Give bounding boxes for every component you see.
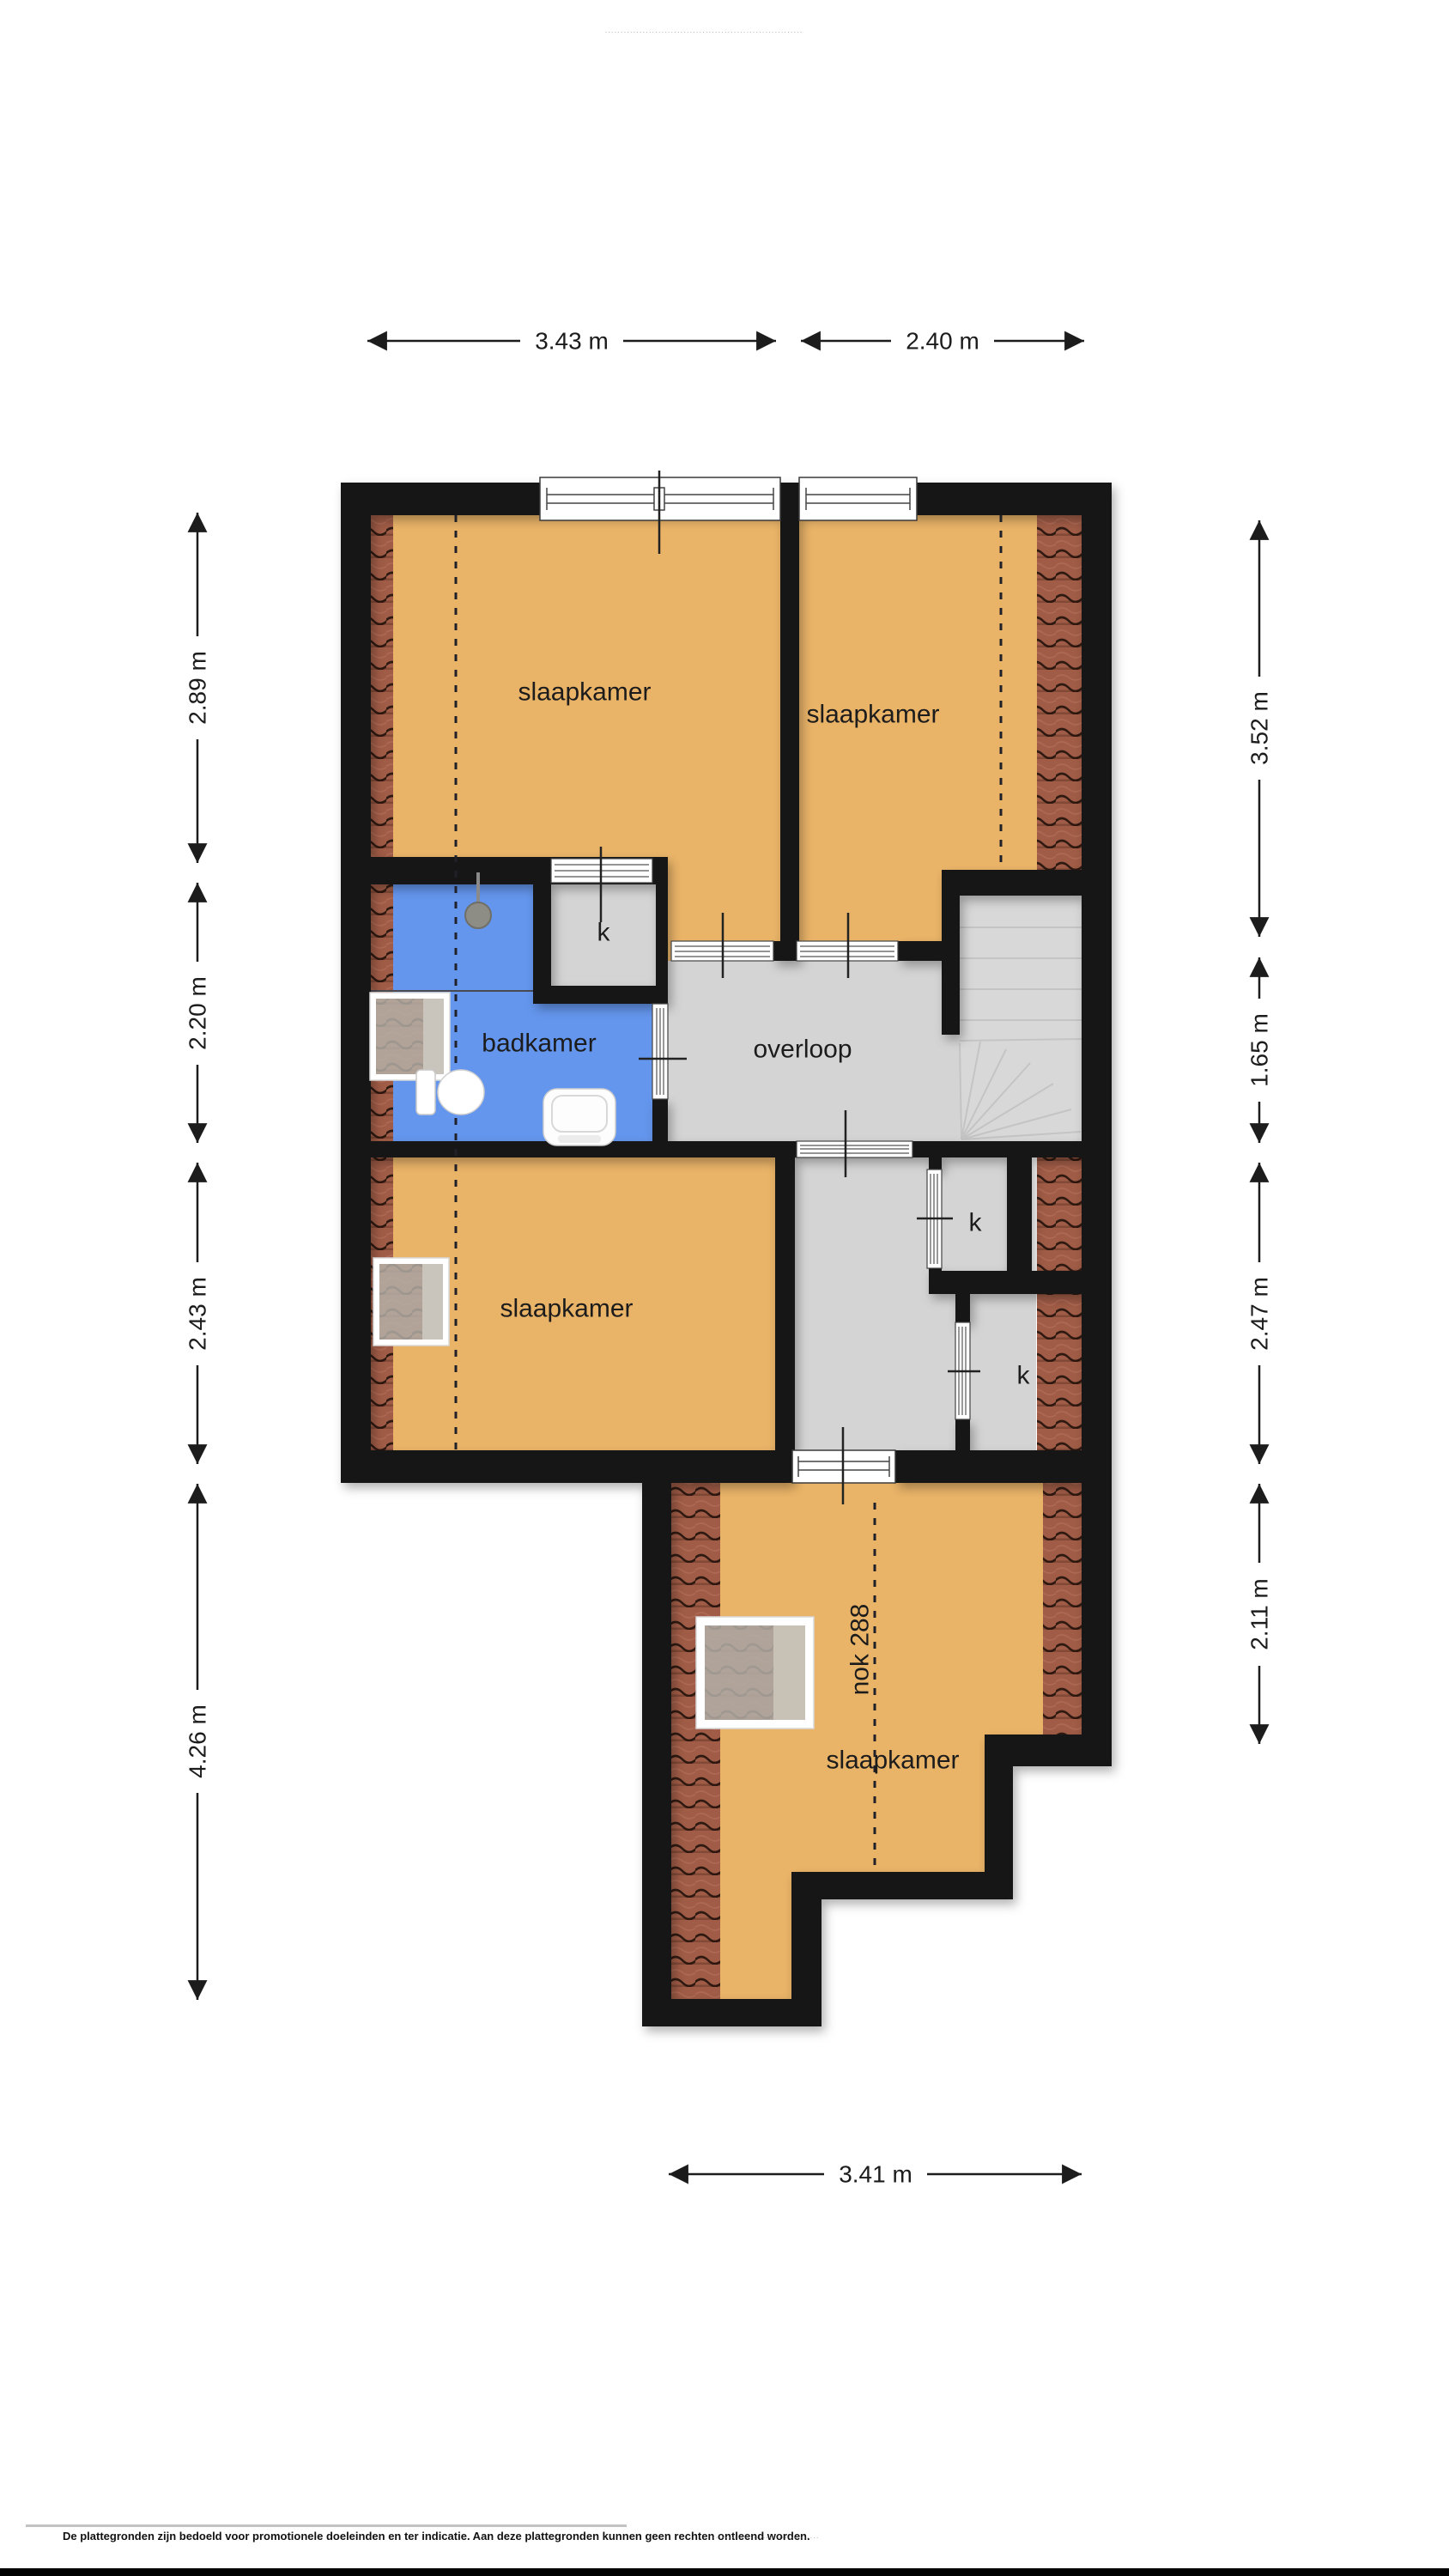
label-closet-bottom: k: [1017, 1362, 1031, 1390]
top-watermark: ········································…: [605, 28, 803, 36]
footer-streak: [26, 2524, 627, 2527]
label-bedroom-top-right: slaapkamer: [806, 701, 939, 729]
roof-tiles-bottom-left: [671, 1483, 720, 1999]
window-top-right: [799, 477, 917, 520]
label-bedroom-bottom: slaapkamer: [826, 1747, 959, 1775]
footer-bar: [0, 2568, 1449, 2576]
footer-disclaimer: De plattegronden zijn bedoeld voor promo…: [63, 2530, 810, 2543]
footer-watermark: ··································: [712, 2534, 820, 2542]
svg-text:3.52 m: 3.52 m: [1246, 691, 1273, 765]
svg-text:2.89 m: 2.89 m: [185, 651, 211, 725]
svg-text:2.40 m: 2.40 m: [906, 328, 979, 355]
opening-landing-south: [797, 1141, 912, 1157]
label-ridge-height: nok 288: [846, 1604, 875, 1696]
skylight-bathroom: [370, 993, 450, 1080]
svg-text:3.43 m: 3.43 m: [535, 328, 609, 355]
sink-icon: [543, 1089, 615, 1145]
stairs: [960, 896, 1082, 1141]
svg-text:1.65 m: 1.65 m: [1246, 1013, 1273, 1087]
label-bedroom-top-left: slaapkamer: [518, 678, 651, 707]
svg-text:4.26 m: 4.26 m: [185, 1704, 211, 1778]
skylight-bedroom-mid: [373, 1258, 449, 1346]
roof-tiles-right-mid: [1037, 1157, 1082, 1450]
label-bedroom-mid-left: slaapkamer: [500, 1295, 633, 1323]
svg-text:2.43 m: 2.43 m: [185, 1277, 211, 1351]
skylight-bedroom-bottom: [696, 1617, 814, 1728]
door-bathroom: [652, 1004, 668, 1099]
label-closet-mid: k: [969, 1209, 983, 1237]
label-landing: overloop: [753, 1036, 852, 1064]
floorplan-canvas: ········································…: [0, 0, 1449, 2576]
floorplan-page: ········································…: [0, 0, 1449, 2576]
svg-text:2.11 m: 2.11 m: [1246, 1578, 1273, 1650]
svg-text:2.20 m: 2.20 m: [185, 976, 211, 1050]
roof-tiles-bottom-right: [1043, 1483, 1082, 1735]
roof-tiles-right-top: [1037, 515, 1082, 870]
svg-text:2.47 m: 2.47 m: [1246, 1277, 1273, 1351]
room-bedroom-top-right-door-bay: [799, 870, 953, 941]
toilet-icon: [416, 1070, 484, 1115]
label-bathroom: badkamer: [482, 1030, 596, 1058]
label-closet-top: k: [597, 919, 611, 947]
svg-text:3.41 m: 3.41 m: [839, 2161, 912, 2188]
